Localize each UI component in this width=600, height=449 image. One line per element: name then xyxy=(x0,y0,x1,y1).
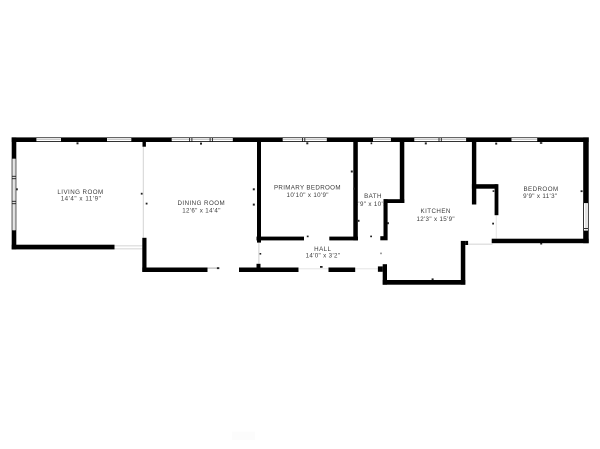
svg-text:10'10" x 10'9": 10'10" x 10'9" xyxy=(287,192,329,199)
svg-text:PRIMARY BEDROOM: PRIMARY BEDROOM xyxy=(274,185,341,192)
svg-text:14'0" x 3'2": 14'0" x 3'2" xyxy=(306,253,341,260)
svg-text:DINING ROOM: DINING ROOM xyxy=(178,200,226,207)
svg-text:12'6" x 14'4": 12'6" x 14'4" xyxy=(182,207,221,214)
svg-text:9'9" x 11'3": 9'9" x 11'3" xyxy=(523,193,557,200)
svg-text:12'3" x 15'9": 12'3" x 15'9" xyxy=(416,216,455,223)
svg-text:BATH: BATH xyxy=(364,193,382,200)
svg-text:14'4" x 11'9": 14'4" x 11'9" xyxy=(61,196,102,203)
svg-text:KITCHEN: KITCHEN xyxy=(421,208,451,215)
